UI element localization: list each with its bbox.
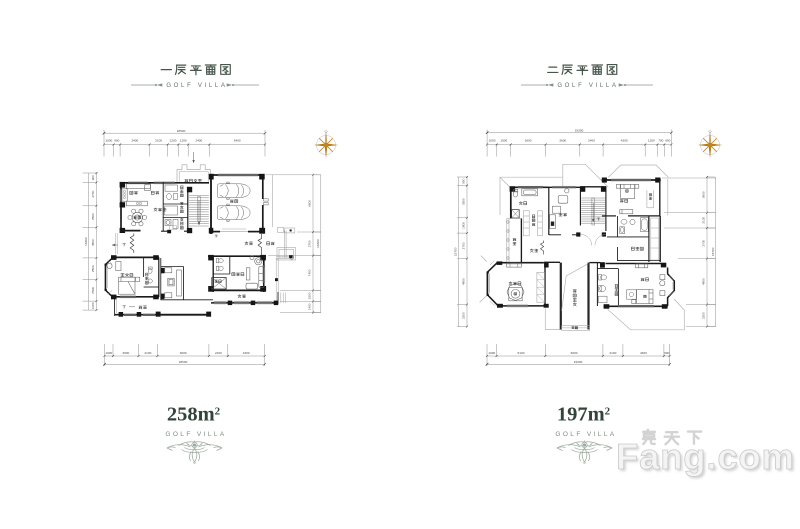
svg-text:1400: 1400 — [308, 303, 312, 310]
svg-text:2100: 2100 — [144, 351, 151, 355]
svg-text:1200: 1200 — [170, 139, 177, 143]
svg-text:7400: 7400 — [308, 269, 312, 276]
svg-text:Fang.com: Fang.com — [616, 436, 795, 477]
svg-text:1000: 1000 — [489, 139, 496, 143]
svg-text:3600: 3600 — [525, 139, 532, 143]
svg-text:4300: 4300 — [640, 351, 647, 355]
svg-text:2400: 2400 — [588, 139, 595, 143]
svg-text:15700: 15700 — [454, 247, 458, 256]
svg-text:6600: 6600 — [308, 200, 312, 207]
svg-text:19300: 19300 — [574, 360, 583, 364]
svg-text:15700: 15700 — [711, 247, 715, 256]
svg-text:2500: 2500 — [91, 287, 95, 294]
svg-text:6000: 6000 — [180, 351, 187, 355]
svg-text:4800: 4800 — [462, 278, 466, 285]
svg-text:2100: 2100 — [702, 217, 706, 224]
svg-text:6000: 6000 — [571, 351, 578, 355]
svg-text:3500: 3500 — [91, 239, 95, 246]
svg-text:16300: 16300 — [316, 239, 320, 248]
svg-text:600: 600 — [665, 139, 670, 143]
svg-text:197m2: 197m2 — [557, 404, 611, 426]
svg-text:900: 900 — [114, 139, 119, 143]
svg-text:4300: 4300 — [243, 351, 250, 355]
svg-text:900: 900 — [462, 178, 466, 183]
svg-text:2700: 2700 — [308, 240, 312, 247]
svg-text:18500: 18500 — [177, 129, 186, 133]
svg-text:2100: 2100 — [155, 139, 162, 143]
svg-text:2200: 2200 — [702, 312, 706, 319]
svg-text:2700: 2700 — [462, 242, 466, 249]
svg-text:3000: 3000 — [122, 351, 129, 355]
svg-text:258m2: 258m2 — [167, 404, 221, 426]
svg-text:600: 600 — [664, 351, 669, 355]
svg-text:5100: 5100 — [518, 351, 525, 355]
svg-text:GOLF VILLA: GOLF VILLA — [557, 83, 618, 89]
svg-text:GOLF VILLA: GOLF VILLA — [165, 431, 226, 438]
svg-text:2700: 2700 — [91, 190, 95, 197]
svg-text:6400: 6400 — [234, 139, 241, 143]
svg-text:3400: 3400 — [131, 139, 138, 143]
svg-text:GOLF VILLA: GOLF VILLA — [166, 83, 227, 89]
svg-text:1000: 1000 — [105, 139, 112, 143]
svg-text:2200: 2200 — [462, 312, 466, 319]
svg-text:2100: 2100 — [215, 351, 222, 355]
svg-text:4800: 4800 — [702, 278, 706, 285]
svg-text:1500: 1500 — [308, 292, 312, 299]
svg-text:1500: 1500 — [500, 139, 507, 143]
svg-text:1000: 1000 — [105, 351, 112, 355]
svg-text:2500: 2500 — [91, 213, 95, 220]
svg-text:1800: 1800 — [462, 222, 466, 229]
svg-text:3300: 3300 — [462, 198, 466, 205]
svg-text:4300: 4300 — [621, 139, 628, 143]
svg-text:19300: 19300 — [575, 128, 584, 132]
svg-text:1000: 1000 — [91, 302, 95, 309]
svg-text:2400: 2400 — [195, 139, 202, 143]
svg-text:1200: 1200 — [180, 139, 187, 143]
svg-text:3600: 3600 — [559, 139, 566, 143]
svg-text:900: 900 — [91, 175, 95, 180]
svg-text:700: 700 — [658, 139, 663, 143]
svg-text:18500: 18500 — [179, 360, 188, 364]
svg-text:1200: 1200 — [648, 139, 655, 143]
svg-text:GOLF VILLA: GOLF VILLA — [555, 431, 616, 438]
svg-text:2500: 2500 — [91, 265, 95, 272]
svg-text:1000: 1000 — [488, 351, 495, 355]
svg-text:16300: 16300 — [84, 237, 88, 246]
svg-text:3600: 3600 — [702, 191, 706, 198]
svg-text:2100: 2100 — [609, 351, 616, 355]
svg-text:2700: 2700 — [702, 240, 706, 247]
